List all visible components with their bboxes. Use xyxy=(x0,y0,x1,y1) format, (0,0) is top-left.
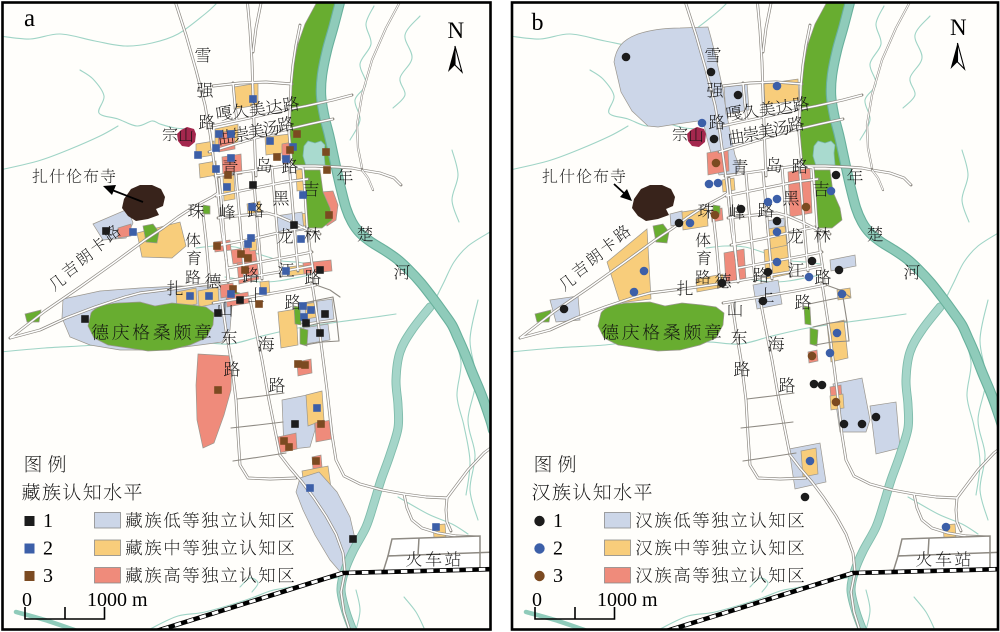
svg-text:N: N xyxy=(950,15,967,40)
svg-text:a: a xyxy=(24,5,35,32)
svg-text:1000 m: 1000 m xyxy=(597,589,658,611)
svg-text:1: 1 xyxy=(43,510,53,532)
svg-text:3: 3 xyxy=(43,565,53,587)
svg-text:1: 1 xyxy=(553,510,563,532)
svg-text:1000 m: 1000 m xyxy=(87,589,148,611)
svg-text:2: 2 xyxy=(43,538,53,560)
svg-text:N: N xyxy=(448,18,465,43)
svg-text:3: 3 xyxy=(553,565,563,587)
svg-text:2: 2 xyxy=(553,538,563,560)
svg-text:0: 0 xyxy=(22,589,32,611)
svg-text:b: b xyxy=(532,10,544,36)
svg-text:0: 0 xyxy=(532,589,542,611)
